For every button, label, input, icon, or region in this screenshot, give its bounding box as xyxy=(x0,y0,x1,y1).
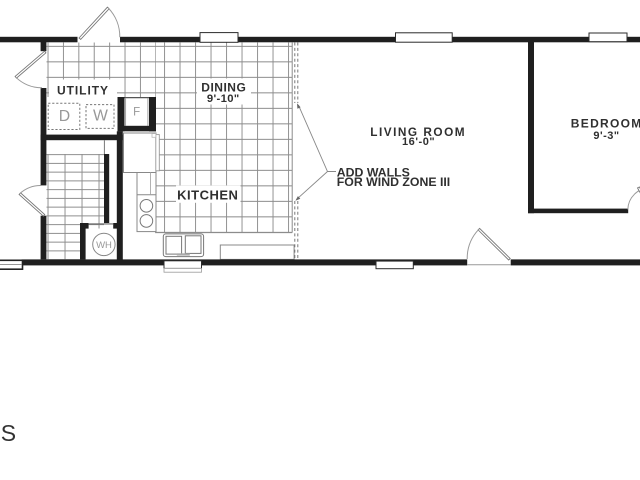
svg-text:W: W xyxy=(93,107,108,124)
svg-text:16'-0": 16'-0" xyxy=(402,136,435,148)
svg-text:D: D xyxy=(59,108,70,125)
svg-text:S: S xyxy=(1,420,16,446)
svg-text:9'-10": 9'-10" xyxy=(207,93,240,105)
svg-text:BEDROOM: BEDROOM xyxy=(571,117,640,131)
svg-text:FOR WIND ZONE III: FOR WIND ZONE III xyxy=(337,175,450,189)
svg-text:9'-3": 9'-3" xyxy=(593,130,619,142)
svg-text:UTILITY: UTILITY xyxy=(57,84,109,98)
svg-text:F: F xyxy=(133,107,140,119)
svg-text:KITCHEN: KITCHEN xyxy=(177,188,238,203)
svg-text:WH: WH xyxy=(96,240,112,251)
